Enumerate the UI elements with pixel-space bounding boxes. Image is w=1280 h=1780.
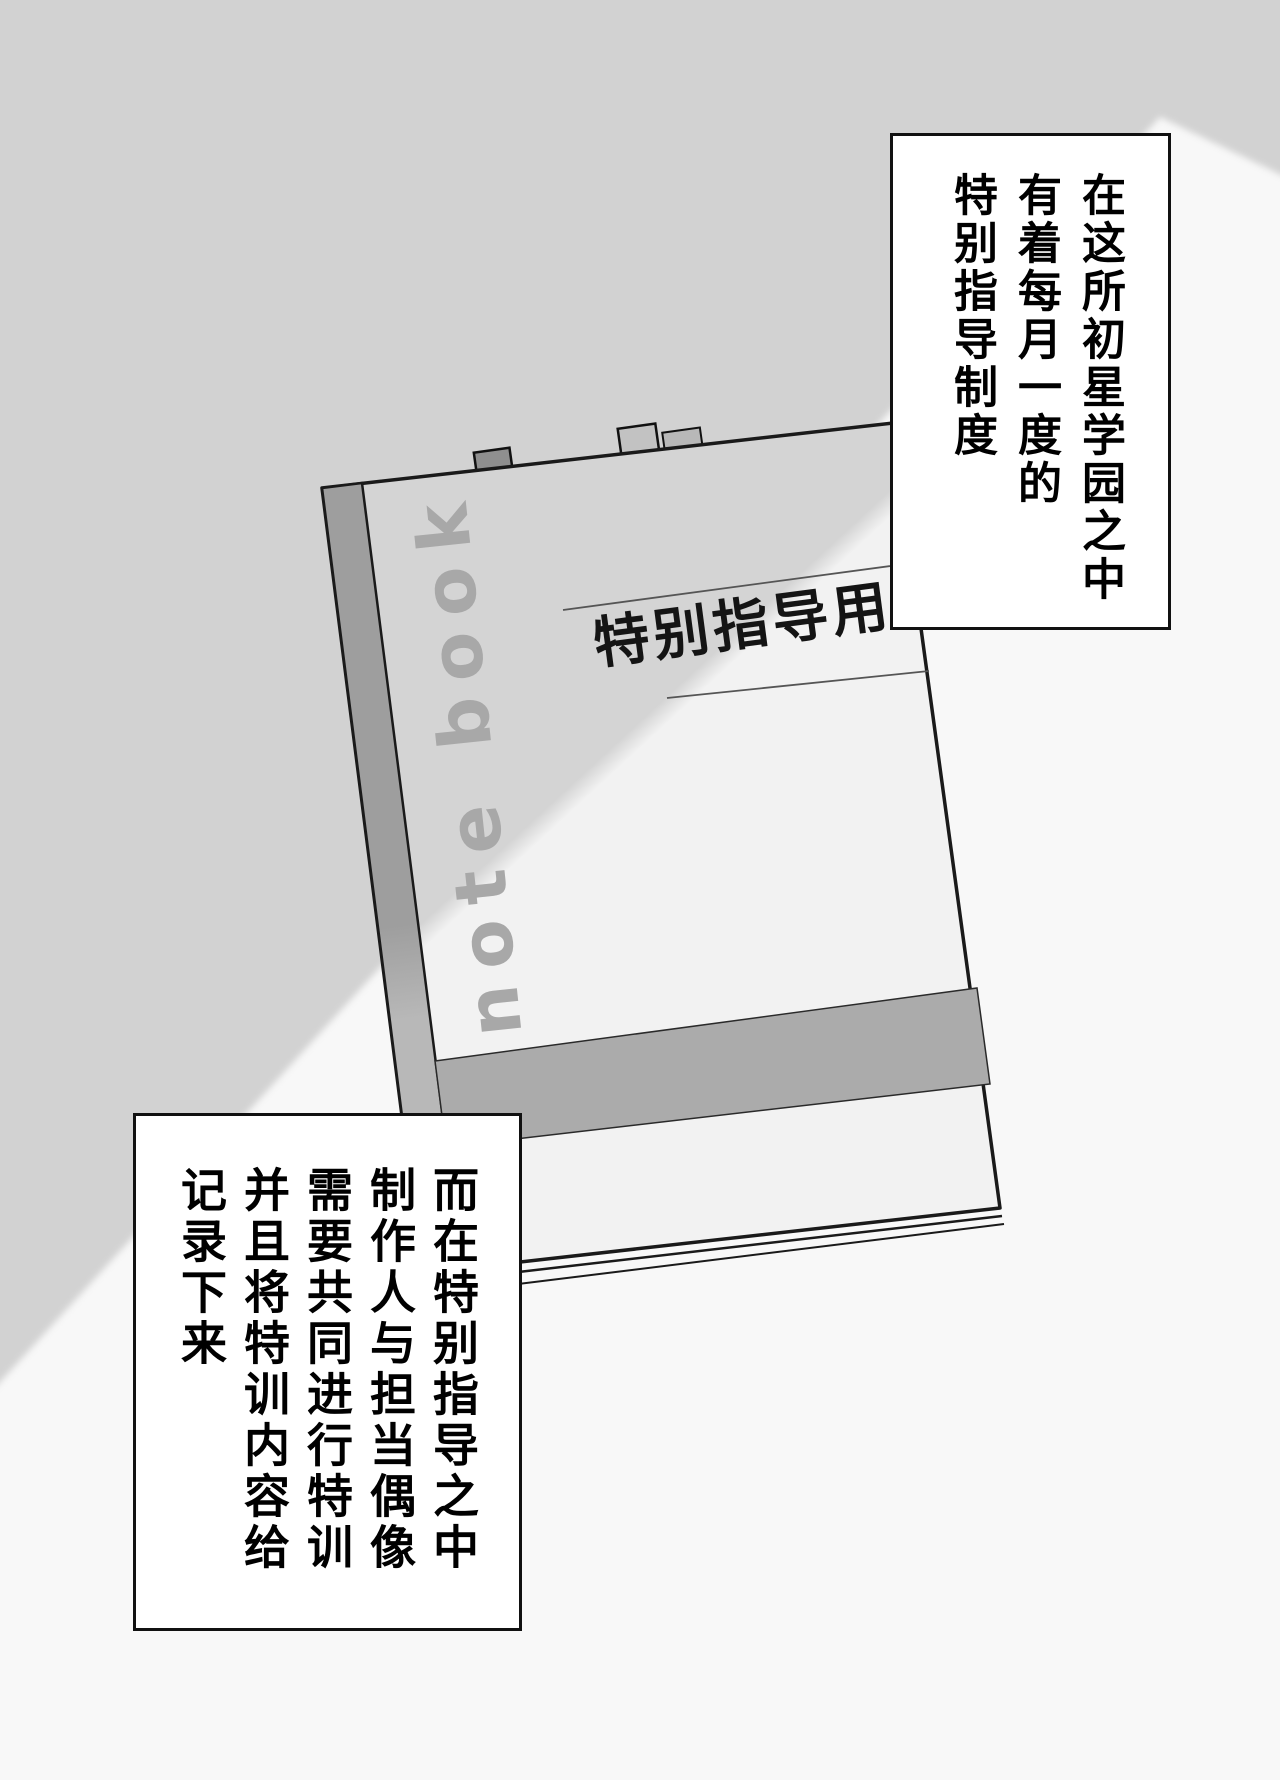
- narration-box-bottom: 而在特别指导之中 制作人与担当偶像 需要共同进行特训 并且将特训内容给 记录下来: [133, 1113, 522, 1631]
- narration-top-text: 在这所初星学园之中 有着每月一度的 特别指导制度: [903, 172, 1131, 617]
- narration-line: 特别指导制度: [939, 172, 1003, 617]
- narration-line: 在这所初星学园之中: [1067, 172, 1131, 617]
- narration-line: 而在特别指导之中: [421, 1166, 484, 1618]
- narration-line: 制作人与担当偶像: [358, 1166, 421, 1618]
- narration-line: 记录下来: [169, 1166, 232, 1618]
- narration-line: 并且将特训内容给: [232, 1166, 295, 1618]
- manga-page: note book 特别指导用 在这所初星学园之中 有着每月一度的 特别指导制度…: [0, 0, 1280, 1780]
- narration-line: 需要共同进行特训: [295, 1166, 358, 1618]
- narration-bottom-text: 而在特别指导之中 制作人与担当偶像 需要共同进行特训 并且将特训内容给 记录下来: [146, 1166, 484, 1618]
- narration-line: 有着每月一度的: [1003, 172, 1067, 617]
- narration-box-top: 在这所初星学园之中 有着每月一度的 特别指导制度: [890, 133, 1171, 630]
